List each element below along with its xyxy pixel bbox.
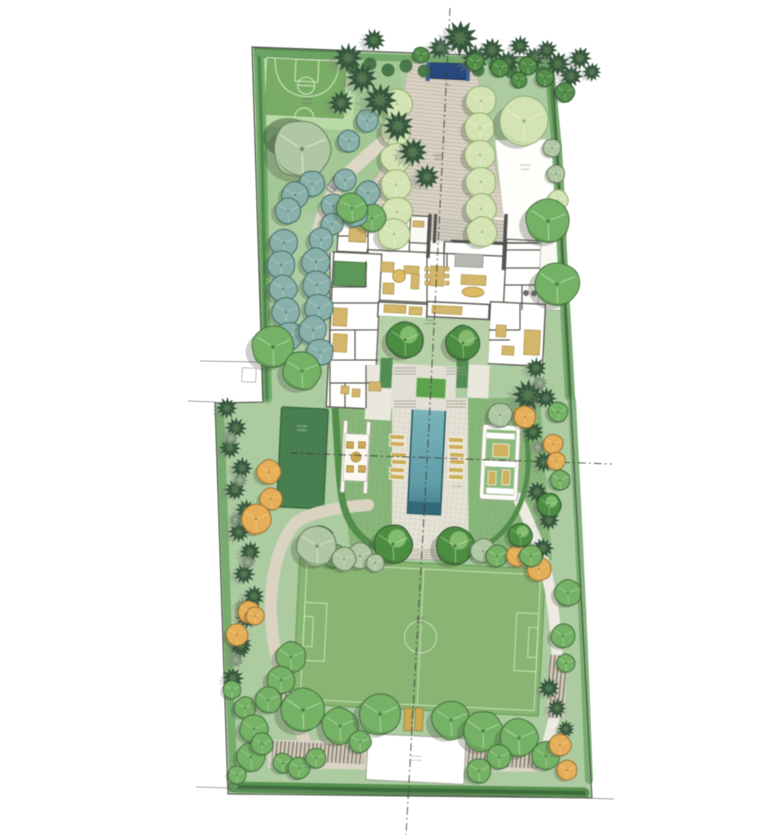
svg-text:PAVILION: PAVILION <box>410 759 421 763</box>
svg-text:COURT: COURT <box>521 168 530 171</box>
svg-text:GRAVEL: GRAVEL <box>433 154 443 157</box>
svg-text:SPORT: SPORT <box>302 97 311 101</box>
svg-text:GARDEN: GARDEN <box>297 429 308 433</box>
svg-text:DRIVE: DRIVE <box>434 158 442 161</box>
svg-text:COURT: COURT <box>302 101 312 105</box>
svg-text:MOTOR: MOTOR <box>520 164 530 167</box>
svg-text:LAWN: LAWN <box>416 620 424 624</box>
svg-text:GARDEN: GARDEN <box>411 755 422 759</box>
svg-text:CUTTING: CUTTING <box>297 425 308 429</box>
svg-text:GREAT: GREAT <box>416 616 425 620</box>
